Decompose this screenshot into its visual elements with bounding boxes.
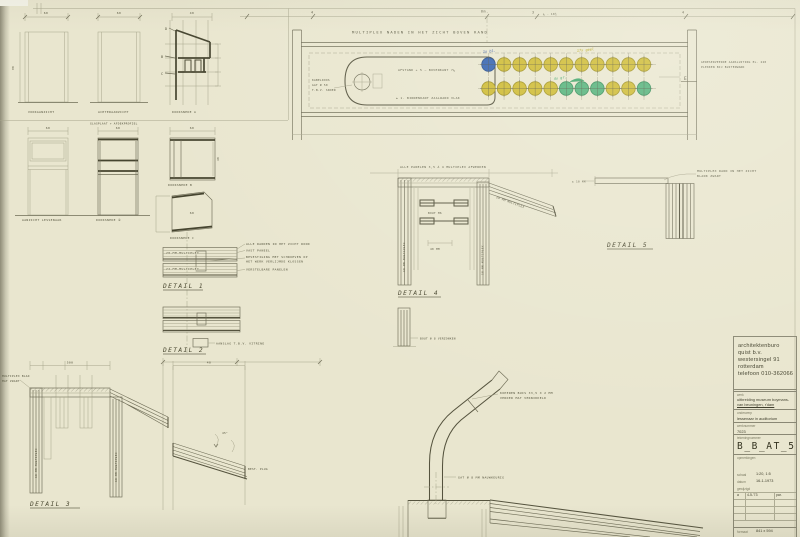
dim-label: 60 (46, 126, 50, 130)
note: AFSTAND + 5 — BOVENKANT 7¼ (398, 68, 455, 73)
note: MULTIPLEX RAND IN HET ZICHT (697, 169, 757, 173)
cabinet-elevation-1: 60 AANZICHT LESSENAAR (15, 126, 150, 222)
auditorium-plan: 4 6m. 3 ¼ - 10½ 4 MULTIPLEX NADEN IN HET… (240, 10, 795, 141)
schaal-value: 1:20, 1:5 (756, 472, 771, 476)
count-blue: 1x bl. (483, 49, 496, 54)
view-label: ACHTERAANZICHT (98, 110, 129, 114)
dim-label: 6m. (481, 10, 489, 14)
view-label: DOORSNEDE C (170, 236, 194, 240)
detail-4: ALLE PANELEN 3,5 À 4 MULTIPLEX AFWERKEN … (370, 164, 558, 347)
detail-3: MULTIPLEX BLAD MAT ZWART 500 40 18 MM MU… (2, 361, 268, 511)
title-block: architektenburo quist b.v. westersingel … (733, 336, 797, 537)
cabinet-plan-c: 60 DOORSNEDE C (156, 192, 212, 240)
note: ± 1. BINNENKANT ZAALWAND VLAK (396, 96, 460, 100)
view-label: DOORSNEDE B (168, 183, 192, 187)
elevation-front: 60 90 VOORAANZICHT (11, 11, 78, 114)
detail-2: AANSLAG T.B.V. VITRINE DETAIL 2 (161, 307, 322, 366)
field-label-opmerkingen: opmerkingen (737, 456, 755, 460)
note: BEST. PLUG (248, 467, 268, 471)
detail-label: DETAIL 4 (397, 290, 439, 297)
formaat-label: formaat (737, 530, 748, 534)
note: GAT Ø 50 (312, 82, 328, 87)
elevation-back: 60 ACHTERAANZICHT (90, 11, 148, 114)
dim-label: 60 (190, 126, 194, 130)
schaal-label: schaal (737, 473, 746, 477)
cabinet-section-b: 60 40 DOORSNEDE B (168, 126, 220, 187)
datum-value: 16-1-1973 (756, 479, 773, 483)
note: MULTIPLEX BLAD (2, 374, 30, 378)
gewijzigd-label: gewijzigd (737, 487, 750, 491)
field-label-werknummer: werknummer (737, 424, 755, 428)
note: HET WERK VERLIJMDE KLOSSEN (246, 260, 303, 264)
detail-label: DETAIL 5 (606, 242, 648, 249)
note: MAT ZWART (2, 379, 20, 383)
note: ALLE RANDEN IN HET ZICHT ROND (246, 242, 310, 246)
datum-label: datum (737, 480, 746, 484)
architectural-drawing-sheet: 60 90 VOORAANZICHT 60 ACHTERAANZICHT 40 … (0, 0, 800, 537)
note: PLEKKEN BIJ BUITENWAND (701, 65, 745, 69)
dim-label: 4 (682, 11, 685, 15)
material-label: 18 MM MULTIPLEX (114, 452, 118, 482)
view-label: VOORAANZICHT (28, 110, 54, 114)
angle-label: 45° (222, 431, 228, 435)
dim-label: 40 MM (430, 247, 440, 251)
dim-label: 60 (190, 211, 194, 215)
dim-label: 4 (311, 11, 314, 15)
detail-5: ± 10 MM MULTIPLEX RAND IN HET ZICHT BLAN… (572, 169, 757, 249)
material-label: 18 MM MULTIPLEX (481, 245, 485, 275)
marker: B (161, 55, 164, 59)
gewijzigd-date: 4-5-'73 (747, 493, 757, 497)
material-label: 18 MM MULTIPLEX (34, 448, 38, 478)
firm-phone: telefoon 010-362066 (738, 371, 793, 378)
note: ± 10 MM (572, 180, 586, 184)
note: MULTIPLEX NADEN IN HET ZICHT BOVEN RAND (352, 30, 488, 35)
detail-label: DETAIL 2 (162, 347, 204, 354)
werknummer-value: 7023 (737, 429, 746, 434)
detail-label: DETAIL 1 (162, 283, 204, 290)
dim-label: 500 (67, 361, 74, 365)
marker: D (165, 27, 168, 31)
note: GAT Ø 8 MM NAUWKEURIG (458, 475, 504, 480)
dim-label: 40 (216, 157, 220, 161)
dim-label: 60 (116, 126, 120, 130)
dim-label: 60 (117, 11, 121, 15)
detail-1: ALLE RANDEN IN HET ZICHT ROND VAST PANEE… (162, 232, 310, 355)
view-label: DOORSNEDE A (172, 110, 196, 114)
dim-label: 60 (44, 11, 48, 15)
count-yellow: 17x geel (577, 47, 595, 53)
note: AANSLAG T.B.V. VITRINE (216, 342, 265, 346)
note: VAST PANEEL (246, 249, 270, 253)
cabinet-section-2: GLASPLAAT + AFDEKPROFIEL 60 DOORSNEDE ② (90, 122, 138, 223)
note: BOUT M6 (428, 211, 442, 215)
note: GERESERVEERDE AANSLUITING EL. 220 (701, 60, 766, 64)
microphone-tube: KOPEREN BUIS 33,5 X 2 MM VERDER MAT VERN… (399, 371, 703, 537)
marker: C (161, 72, 164, 76)
drawing-number: B_B_AT_5 (737, 441, 796, 452)
gewijzigd-par: par. (776, 493, 782, 497)
material-label: 22 MM MULTIPLEX (166, 267, 199, 271)
dim-label: 40 (190, 11, 194, 15)
marker-e: E (684, 76, 687, 82)
lamp-circle-grid (478, 53, 656, 100)
detail-label: DETAIL 3 (29, 501, 71, 508)
field-label-onderwerp: onderwerp (737, 411, 752, 415)
detail-3-slope: 45° BEST. PLUG (173, 431, 268, 479)
firm-name: architektenburo (738, 343, 793, 350)
note: BLANK ZWART (697, 174, 721, 178)
view-label: AANZICHT LESSENAAR (22, 218, 62, 222)
note: GLASPLAAT + AFDEKPROFIEL (90, 122, 138, 126)
note: VERDER MAT VERNIKKELD (500, 396, 546, 400)
note: VERSTELBARE PANELEN (246, 268, 288, 272)
section-a: 40 D B C DOORSNEDE A (161, 11, 221, 114)
material-label: 28 MM MULTIPLEX (166, 251, 199, 255)
drawing-linework: 60 90 VOORAANZICHT 60 ACHTERAANZICHT 40 … (0, 0, 800, 537)
gewijzigd-letter: a (737, 493, 739, 497)
dim-label: 90 (11, 66, 15, 70)
note: BOUT Ø 8 VERZONKEN (420, 336, 456, 341)
note: ALLE PANELEN 3,5 À 4 MULTIPLEX AFWERKEN (400, 164, 486, 169)
note: KOPEREN BUIS 33,5 X 2 MM (500, 391, 553, 395)
view-label: DOORSNEDE ② (96, 218, 121, 222)
dim-label: 3 (532, 11, 535, 15)
dim-label: 40 (207, 361, 211, 365)
material-label: 18 MM MULTIPLEX (402, 242, 406, 272)
onderwerp-value: lessenaar in auditorium (737, 416, 777, 421)
note: BEVESTIGING MET SCHROEVEN OP (246, 255, 308, 259)
formaat-value: 841 x 594 (756, 529, 773, 533)
note: T.B.V. SNOER (312, 88, 336, 92)
note: KABELDOOS (312, 78, 330, 82)
count-green: 4x gr. (554, 75, 567, 81)
field-label-tekeningnummer: tekeningnummer (737, 436, 761, 440)
firm-address: architektenburo quist b.v. westersingel … (738, 343, 793, 378)
